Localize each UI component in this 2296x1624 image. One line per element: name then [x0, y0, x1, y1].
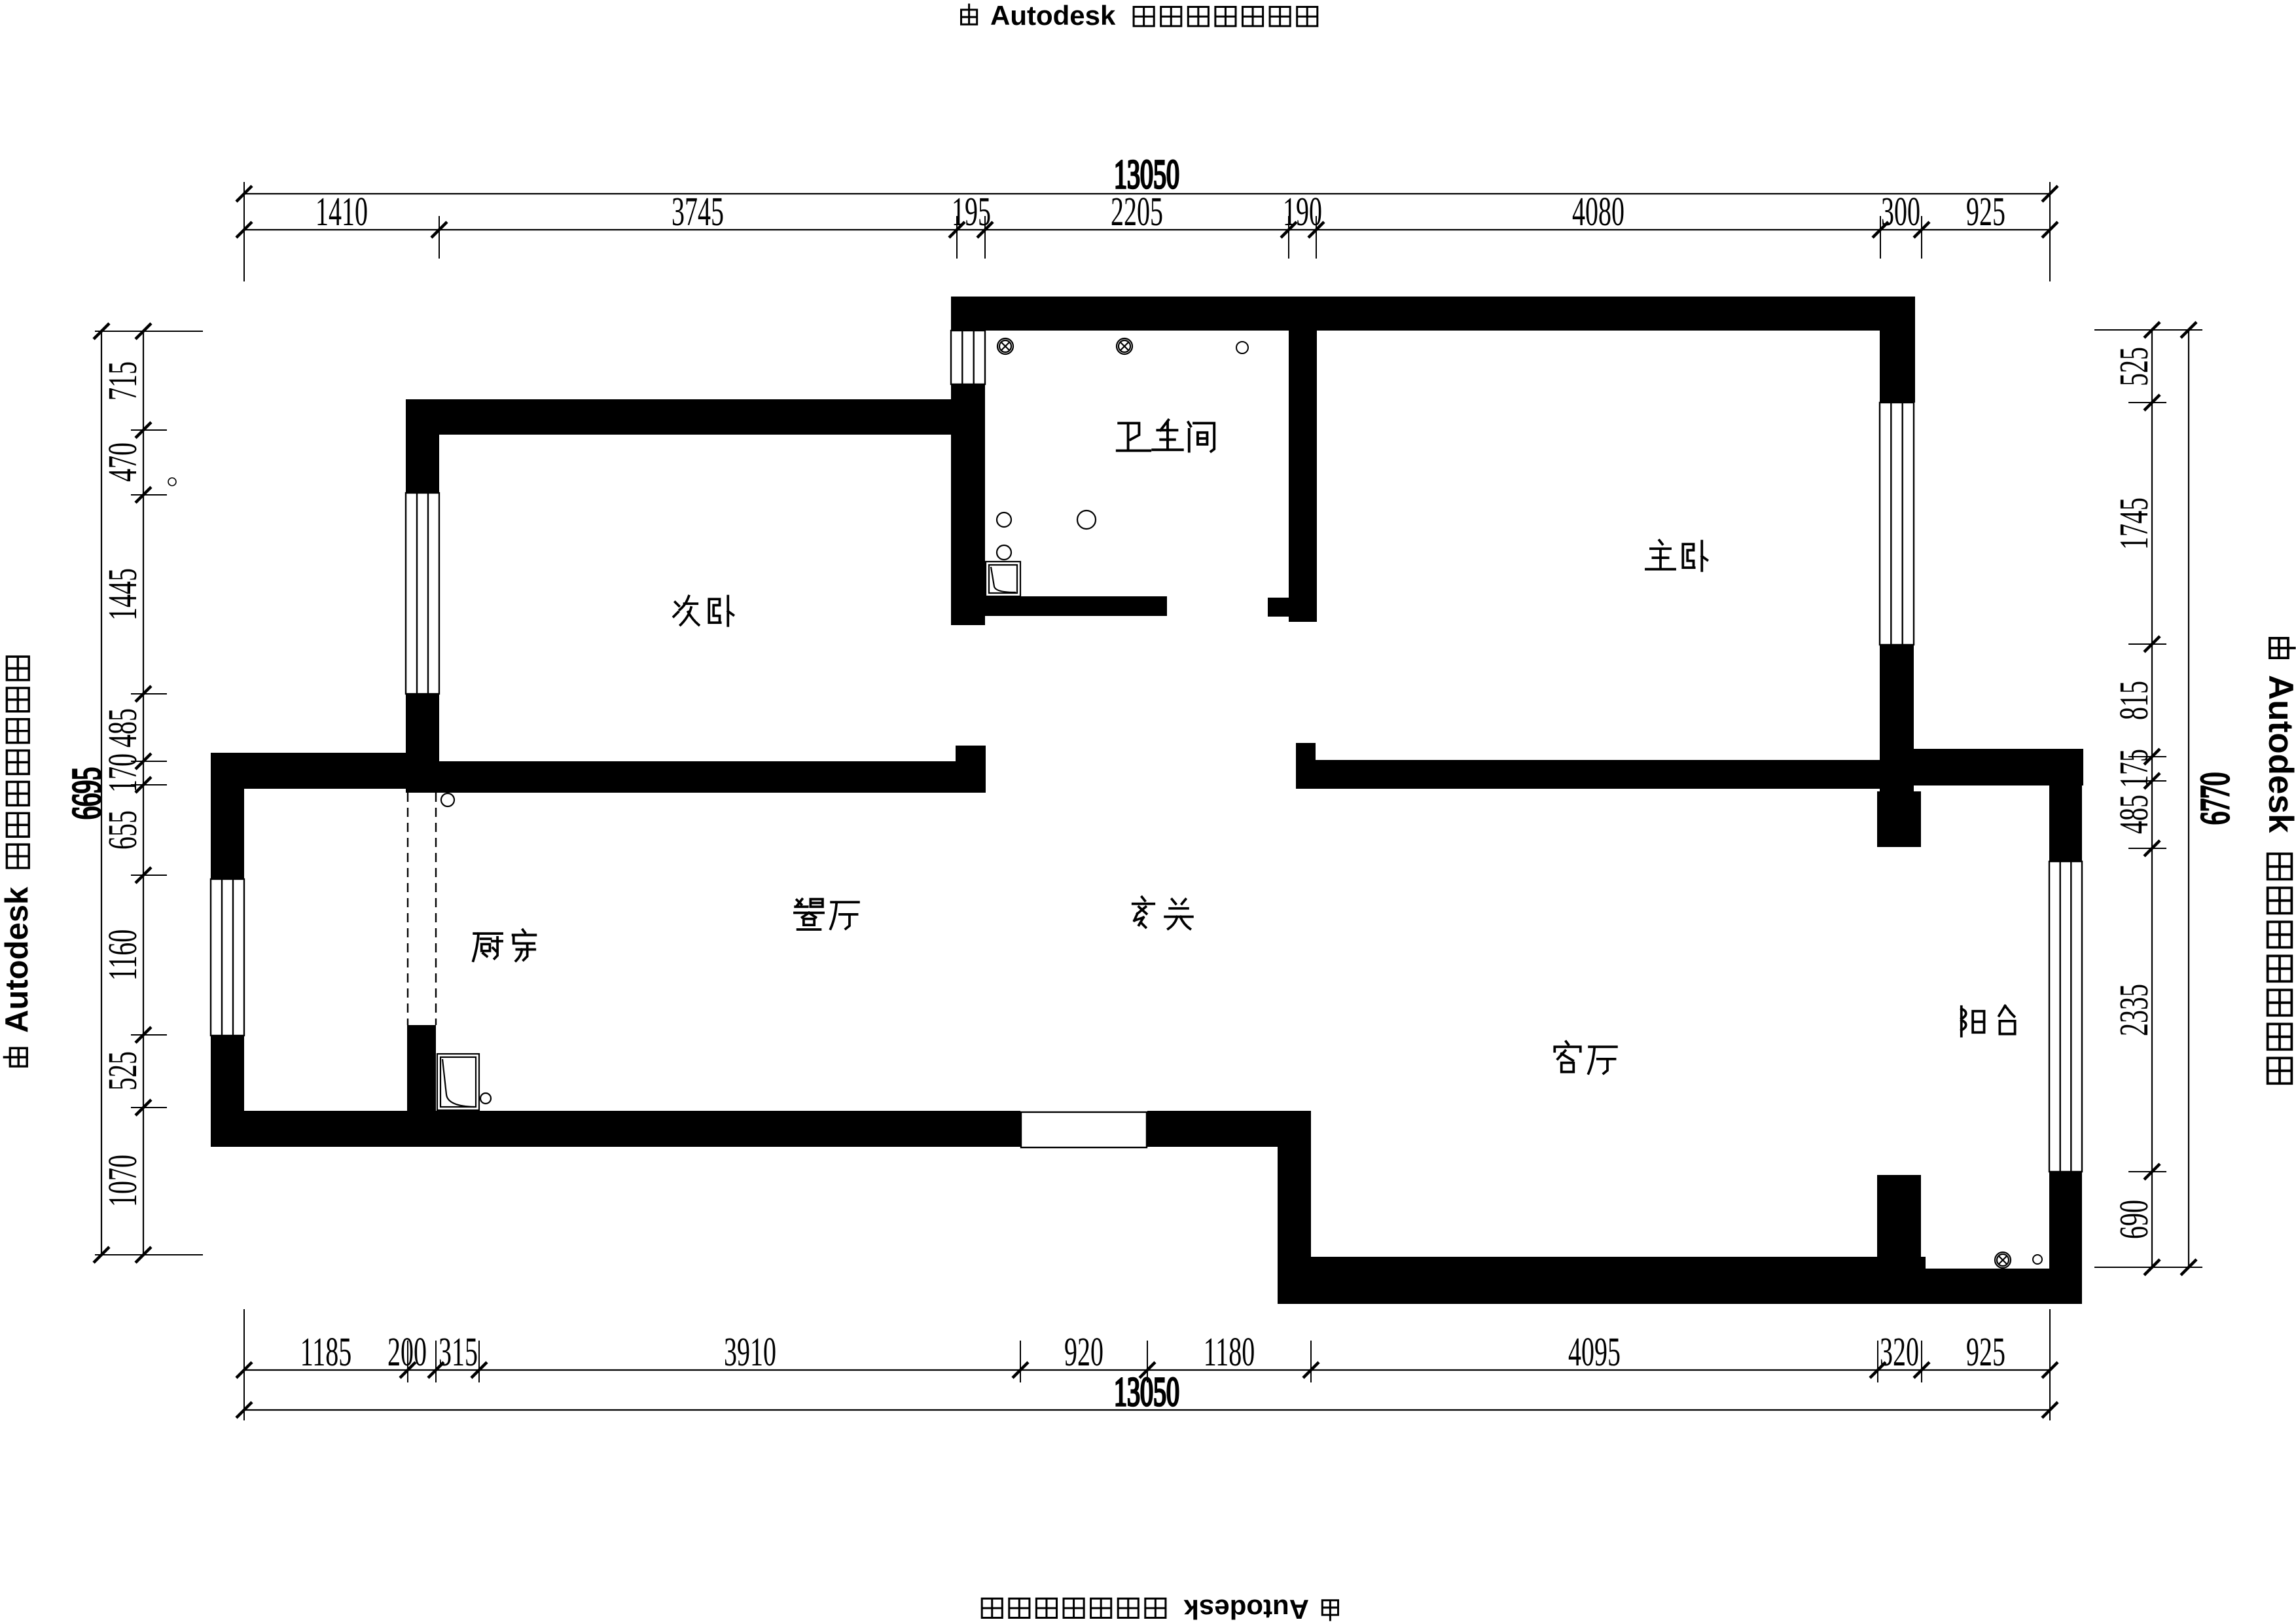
svg-text:320: 320 — [1880, 1331, 1919, 1375]
svg-text:4080: 4080 — [1572, 190, 1624, 235]
svg-text:6695: 6695 — [65, 767, 110, 820]
svg-text:525: 525 — [2113, 347, 2157, 386]
svg-text:195: 195 — [952, 190, 991, 235]
svg-text:6770: 6770 — [2194, 772, 2238, 825]
svg-text:Autodesk: Autodesk — [2261, 675, 2296, 833]
svg-text:1410: 1410 — [315, 190, 368, 235]
svg-text:485: 485 — [2113, 795, 2157, 834]
svg-text:Autodesk: Autodesk — [1183, 1594, 1309, 1624]
svg-text:Autodesk: Autodesk — [990, 0, 1116, 31]
svg-text:925: 925 — [1966, 1331, 2005, 1375]
svg-text:1070: 1070 — [101, 1155, 146, 1207]
svg-text:3910: 3910 — [724, 1331, 776, 1375]
svg-text:525: 525 — [101, 1051, 146, 1091]
svg-text:13050: 13050 — [1114, 153, 1179, 198]
svg-text:715: 715 — [101, 361, 146, 401]
svg-text:1185: 1185 — [300, 1331, 352, 1375]
svg-text:1445: 1445 — [101, 568, 146, 621]
svg-text:190: 190 — [1283, 190, 1322, 235]
svg-text:1745: 1745 — [2113, 497, 2157, 550]
svg-text:Autodesk: Autodesk — [0, 886, 35, 1033]
svg-text:3745: 3745 — [672, 190, 724, 235]
svg-text:13050: 13050 — [1114, 1371, 1179, 1415]
svg-text:920: 920 — [1064, 1331, 1103, 1375]
svg-text:470: 470 — [101, 442, 146, 482]
svg-text:315: 315 — [439, 1331, 478, 1375]
svg-text:485: 485 — [101, 708, 146, 748]
svg-text:2335: 2335 — [2113, 984, 2157, 1036]
svg-text:1160: 1160 — [101, 929, 146, 981]
svg-text:4095: 4095 — [1568, 1331, 1621, 1375]
svg-text:300: 300 — [1881, 190, 1920, 235]
svg-text:815: 815 — [2113, 681, 2157, 720]
svg-text:690: 690 — [2113, 1200, 2157, 1239]
svg-text:200: 200 — [387, 1331, 427, 1375]
svg-text:175: 175 — [2113, 749, 2157, 788]
svg-text:1180: 1180 — [1204, 1331, 1255, 1375]
svg-text:925: 925 — [1966, 190, 2005, 235]
